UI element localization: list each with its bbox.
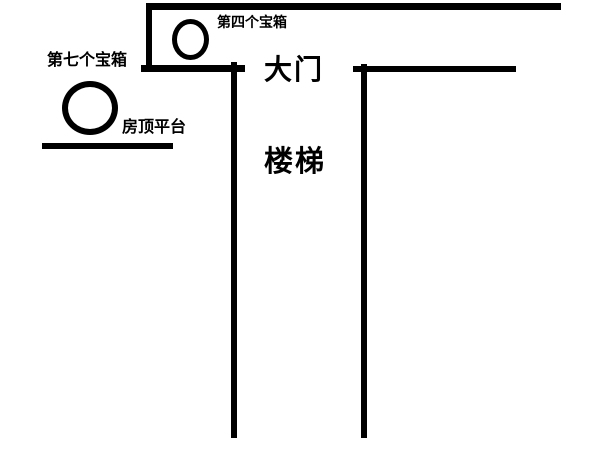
roof-platform-label: 房顶平台 bbox=[122, 118, 186, 136]
fourth-chest-circle-marker bbox=[172, 19, 209, 60]
stairs-label: 楼梯 bbox=[264, 145, 326, 178]
right-ledge-line bbox=[353, 66, 516, 72]
seventh-chest-circle-marker bbox=[62, 81, 118, 135]
gate-label: 大门 bbox=[264, 54, 324, 86]
stairs-right-wall-line bbox=[361, 64, 367, 438]
chest-alcove-left-wall-line bbox=[146, 3, 152, 72]
seventh-chest-label: 第七个宝箱 bbox=[47, 51, 127, 69]
roof-platform-line bbox=[42, 143, 173, 149]
chest-alcove-bottom-wall-line bbox=[141, 65, 245, 72]
top-wall-line bbox=[146, 3, 561, 10]
diagram-canvas: 第四个宝箱 第七个宝箱 房顶平台 大门 楼梯 bbox=[0, 0, 600, 458]
stairs-left-wall-line bbox=[231, 62, 237, 438]
fourth-chest-label: 第四个宝箱 bbox=[217, 15, 287, 31]
